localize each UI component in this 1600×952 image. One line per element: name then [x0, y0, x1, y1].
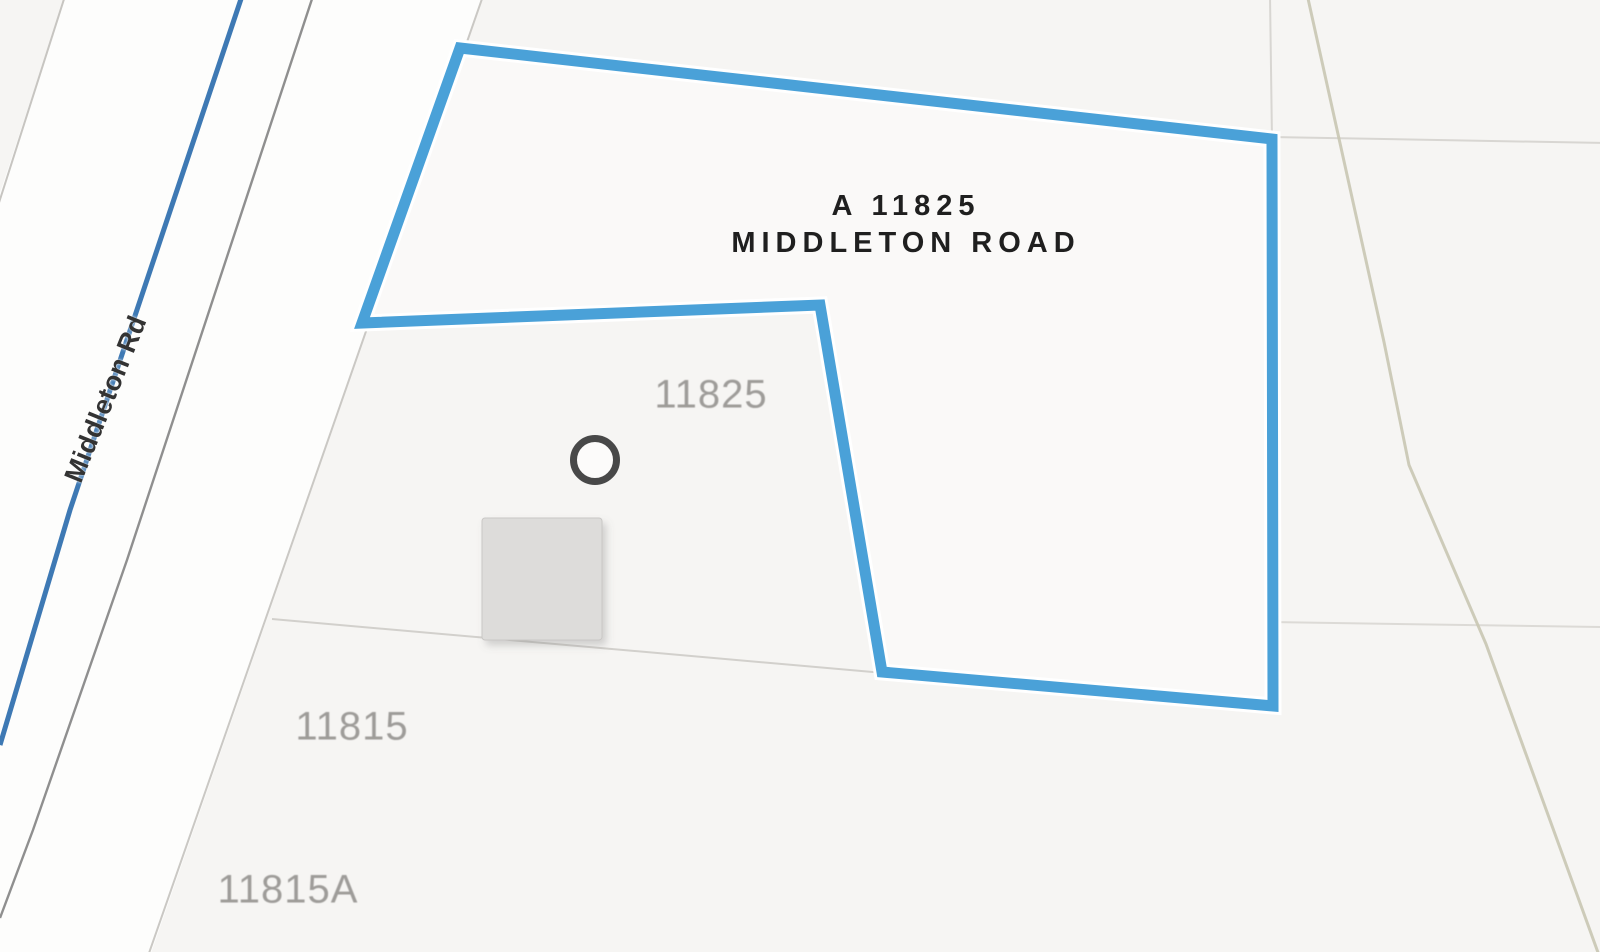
building-footprint	[482, 518, 602, 640]
parcel-label-11815: 11815	[295, 705, 408, 750]
map-canvas[interactable]: A 11825 MIDDLETON ROAD 11825 11815 11815…	[0, 0, 1600, 952]
circle-marker	[574, 439, 617, 482]
parcel-label-11825: 11825	[654, 373, 767, 418]
parcel-line-east-upper	[1271, 137, 1600, 143]
parcel-label-11815a: 11815A	[218, 868, 359, 913]
property-title: A 11825 MIDDLETON ROAD	[606, 188, 1206, 262]
map-layers	[0, 0, 1600, 952]
parcel-line-east-lower	[1266, 622, 1600, 627]
property-title-line2: MIDDLETON ROAD	[606, 225, 1206, 262]
parcel-line-north	[1270, 0, 1272, 140]
property-title-line1: A 11825	[606, 188, 1206, 225]
